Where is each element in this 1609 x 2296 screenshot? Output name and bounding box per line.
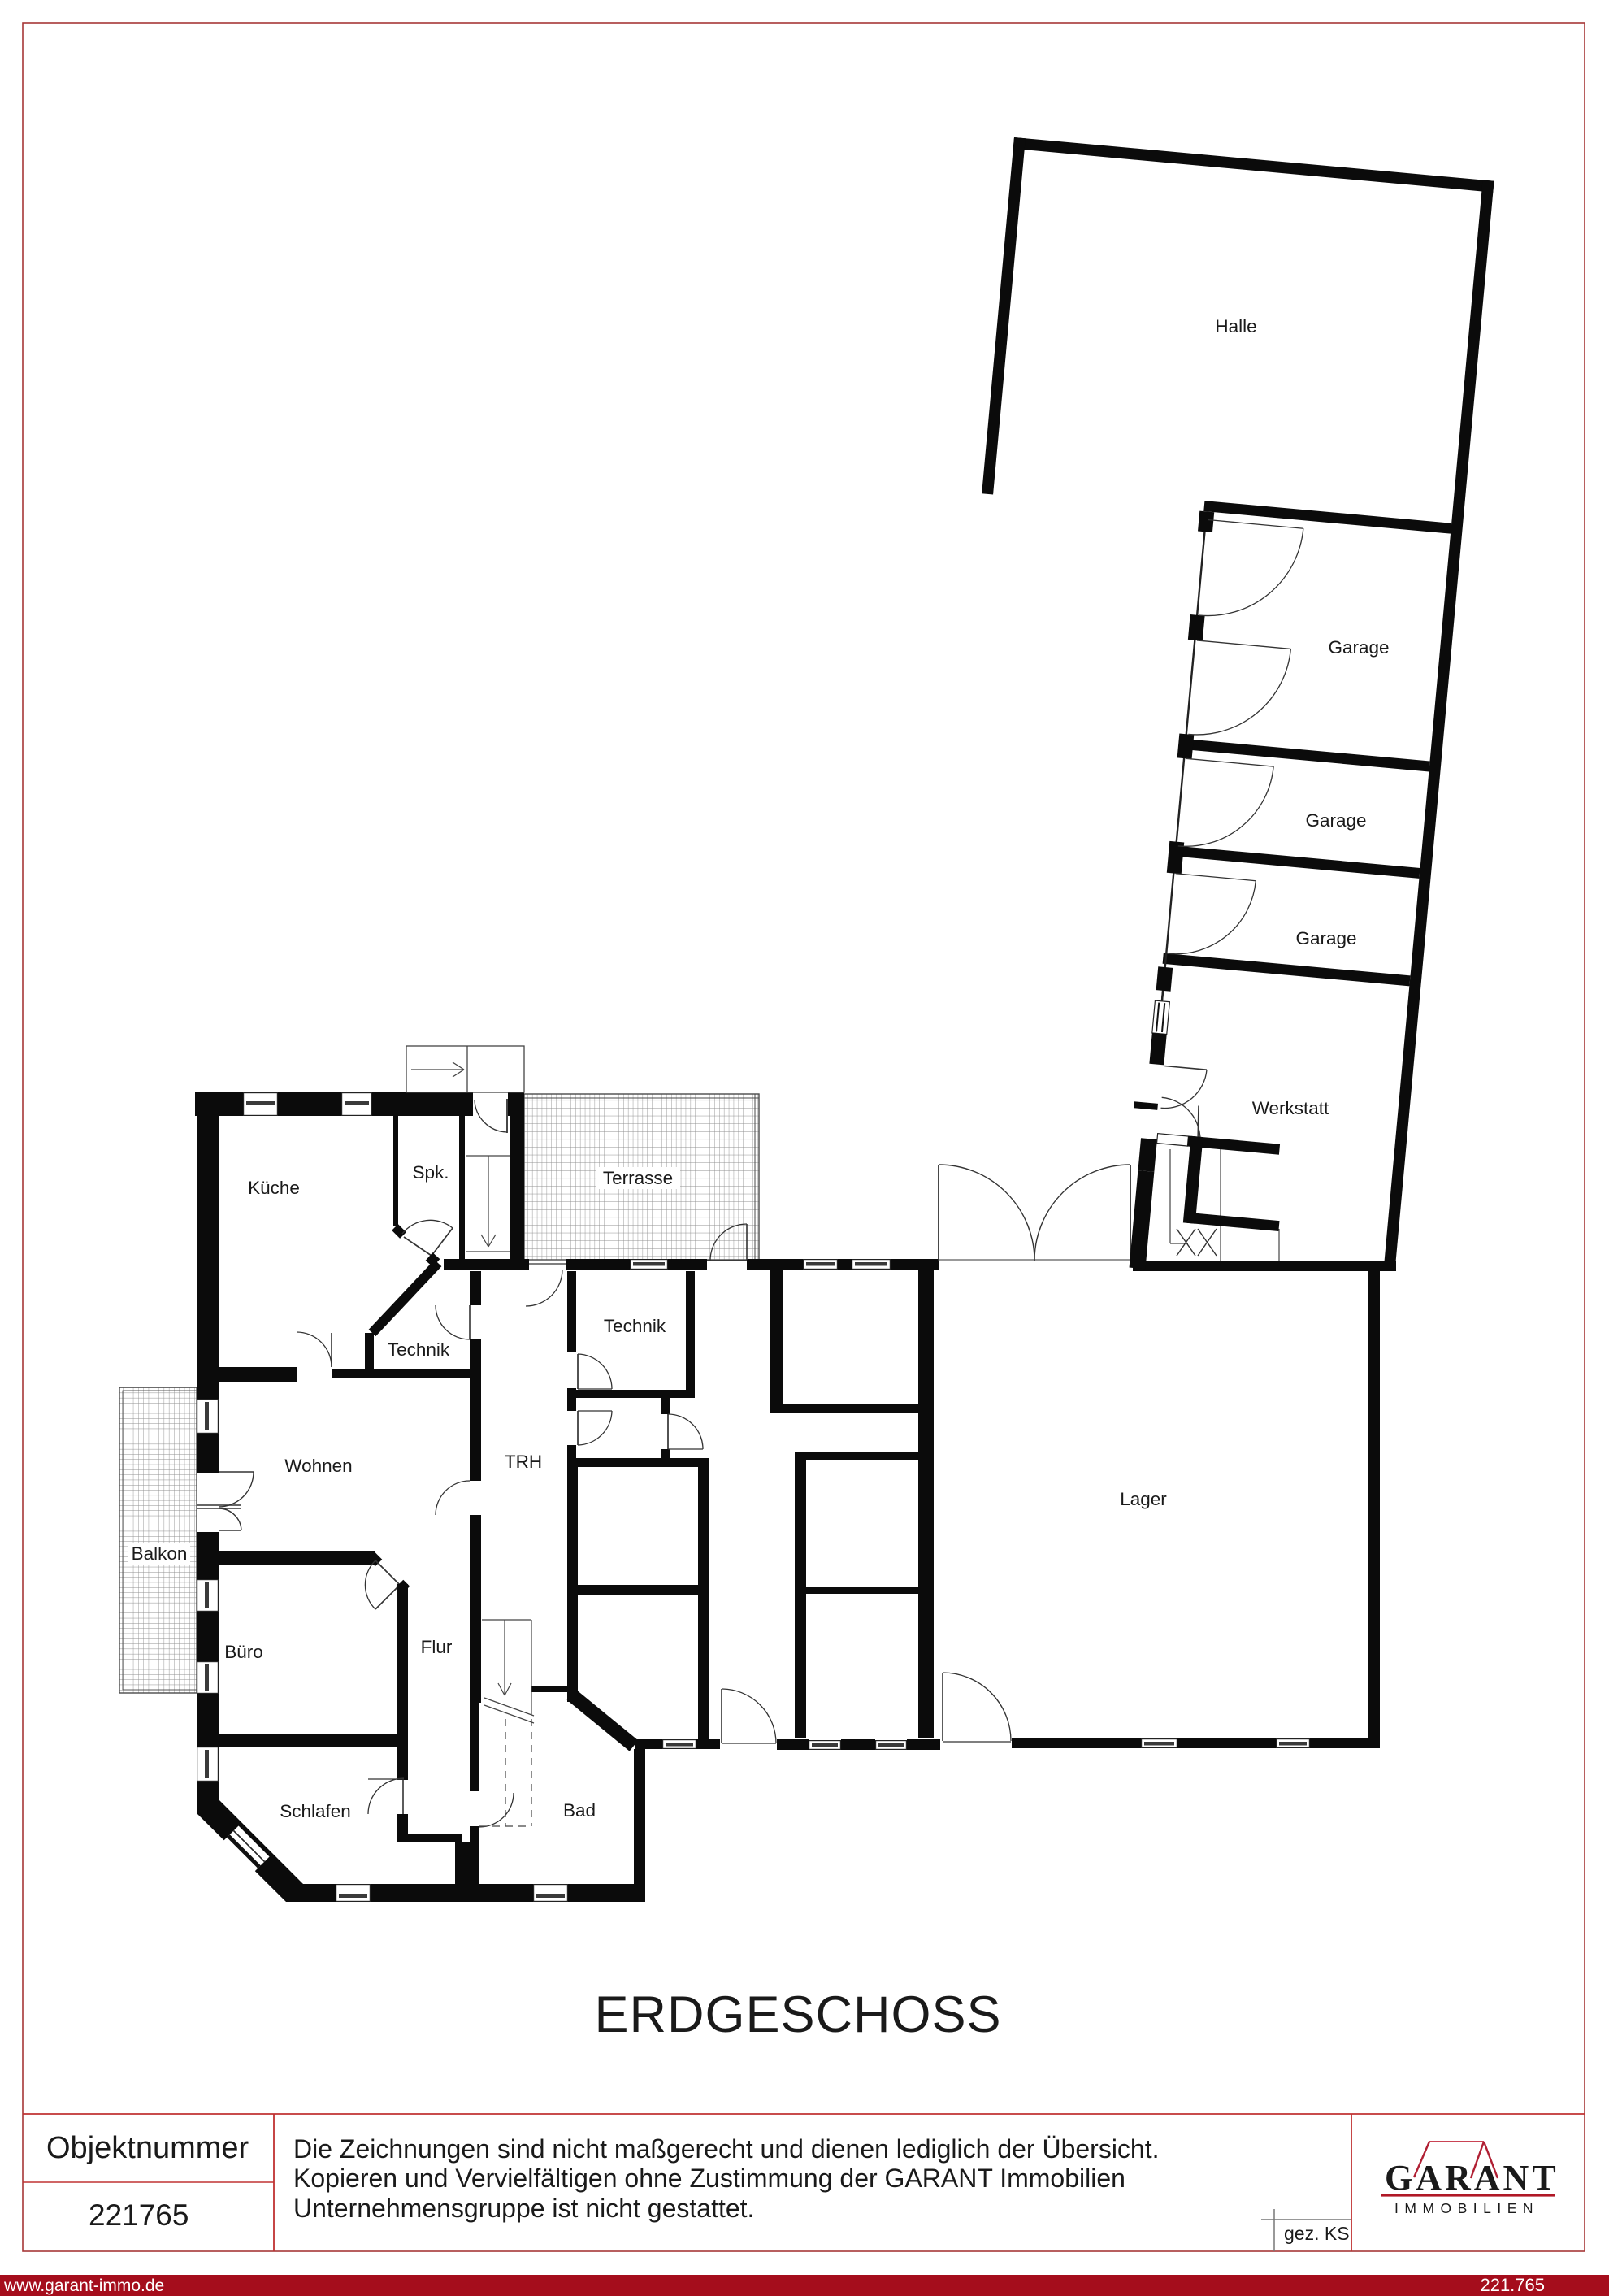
svg-text:Die Zeichnungen sind nicht maß: Die Zeichnungen sind nicht maßgerecht un… bbox=[293, 2134, 1160, 2164]
svg-text:Balkon: Balkon bbox=[132, 1543, 188, 1564]
svg-text:Garage: Garage bbox=[1295, 928, 1356, 948]
svg-text:Spk.: Spk. bbox=[412, 1162, 449, 1183]
svg-text:Lager: Lager bbox=[1120, 1489, 1167, 1509]
svg-text:Werkstatt: Werkstatt bbox=[1252, 1098, 1329, 1118]
svg-text:Technik: Technik bbox=[604, 1316, 666, 1336]
svg-text:ERDGESCHOSS: ERDGESCHOSS bbox=[594, 1986, 1001, 2043]
svg-text:Technik: Technik bbox=[388, 1339, 450, 1360]
svg-text:221765: 221765 bbox=[89, 2198, 189, 2232]
svg-text:www.garant-immo.de: www.garant-immo.de bbox=[3, 2276, 164, 2295]
svg-text:Halle: Halle bbox=[1215, 316, 1256, 336]
svg-text:Flur: Flur bbox=[421, 1637, 453, 1657]
svg-text:Schlafen: Schlafen bbox=[280, 1801, 351, 1821]
svg-text:Küche: Küche bbox=[248, 1178, 300, 1198]
svg-text:Unternehmensgruppe ist nicht g: Unternehmensgruppe ist nicht gestattet. bbox=[293, 2194, 754, 2223]
svg-text:Kopieren und Vervielfältigen o: Kopieren und Vervielfältigen ohne Zustim… bbox=[293, 2164, 1125, 2193]
svg-text:Bad: Bad bbox=[563, 1800, 596, 1821]
svg-text:Terrasse: Terrasse bbox=[603, 1168, 673, 1188]
svg-text:TRH: TRH bbox=[505, 1452, 542, 1472]
svg-text:Büro: Büro bbox=[224, 1642, 263, 1662]
svg-text:221.765: 221.765 bbox=[1480, 2275, 1545, 2295]
svg-text:gez. KS: gez. KS bbox=[1284, 2223, 1350, 2244]
svg-text:IMMOBILIEN: IMMOBILIEN bbox=[1394, 2200, 1539, 2216]
svg-text:Objektnummer: Objektnummer bbox=[46, 2131, 249, 2165]
svg-text:Wohnen: Wohnen bbox=[284, 1456, 352, 1476]
svg-text:Garage: Garage bbox=[1328, 637, 1389, 658]
svg-text:Garage: Garage bbox=[1305, 810, 1366, 831]
